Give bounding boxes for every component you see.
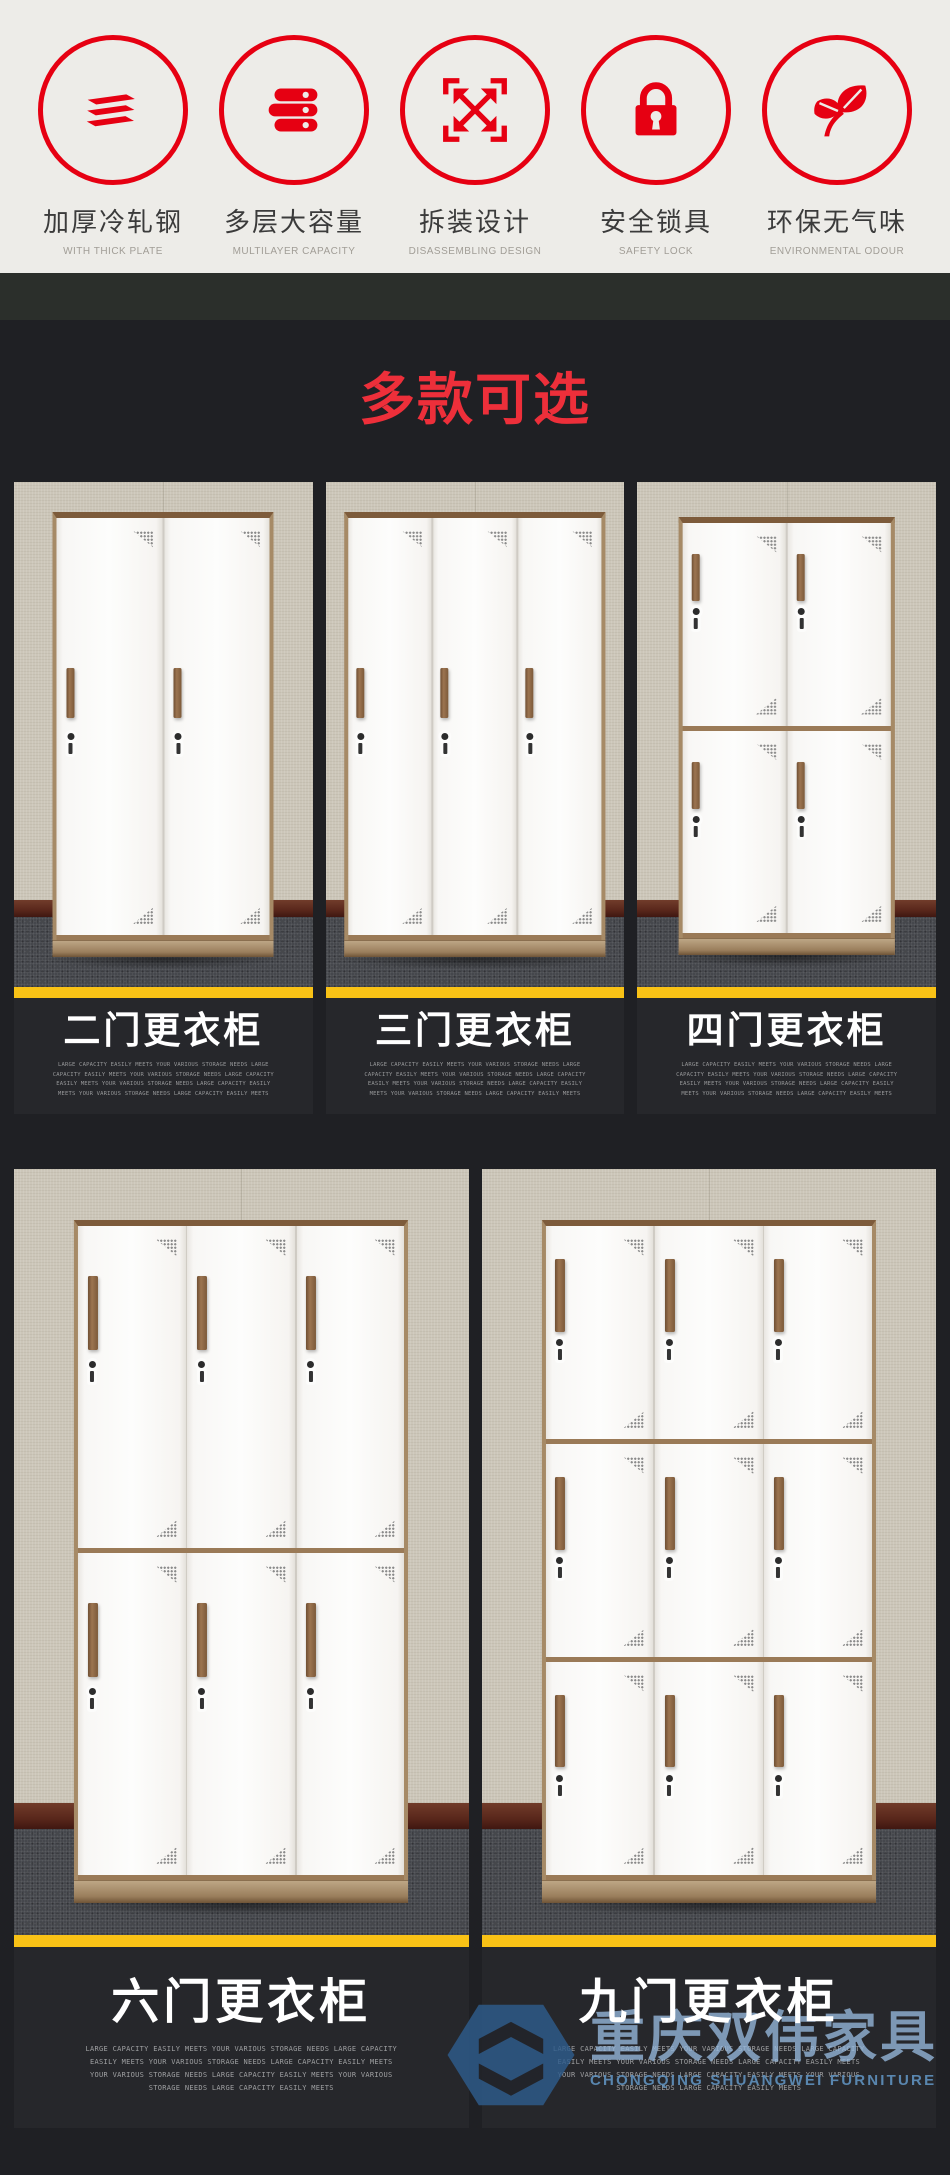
- door-handle: [774, 1259, 784, 1331]
- locker-door: [655, 1226, 763, 1439]
- vent-perforation-icon: [733, 1847, 754, 1864]
- vent-perforation-icon: [572, 531, 593, 548]
- vent-perforation-icon: [842, 1457, 863, 1474]
- door-handle: [441, 668, 449, 718]
- accent-stripe: [14, 987, 313, 998]
- product-label: 三门更衣柜LARGE CAPACITY EASILY MEETS YOUR VA…: [326, 998, 625, 1114]
- feature-label: 加厚冷轧钢: [43, 202, 183, 239]
- keyhole-icon: [775, 1339, 782, 1346]
- vent-perforation-icon: [133, 531, 154, 548]
- feature-item: 拆装设计DISASSEMBLING DESIGN: [390, 0, 560, 257]
- locker-door: [655, 1444, 763, 1657]
- key-icon: [200, 1371, 204, 1382]
- locker-door: [787, 731, 891, 934]
- door-handle: [665, 1695, 675, 1767]
- feature-label: 拆装设计: [419, 202, 531, 239]
- locker-door: [348, 518, 431, 935]
- catalog-section: 多款可选 二门更衣柜LARGE CAPACITY EASILY MEETS YO…: [0, 368, 950, 2173]
- door-handle: [555, 1259, 565, 1331]
- locker-door-row: [682, 731, 891, 934]
- locker-door-row: [682, 523, 891, 726]
- keyhole-icon: [666, 1339, 673, 1346]
- locker-plinth: [678, 938, 895, 955]
- vent-perforation-icon: [156, 1847, 177, 1864]
- locker-door: [297, 1226, 405, 1548]
- vent-perforation-icon: [265, 1239, 286, 1256]
- vent-perforation-icon: [240, 531, 261, 548]
- vent-perforation-icon: [402, 907, 423, 924]
- door-lock: [354, 733, 367, 754]
- door-handle: [66, 668, 74, 718]
- vent-perforation-icon: [623, 1239, 644, 1256]
- locker-door: [655, 1662, 763, 1875]
- section-title: 多款可选: [0, 368, 950, 432]
- disassemble-icon: [436, 71, 514, 149]
- keyhole-icon: [527, 733, 534, 740]
- features-section: 加厚冷轧钢WITH THICK PLATE多层大容量MULTILAYER CAP…: [0, 0, 950, 273]
- vent-perforation-icon: [756, 536, 777, 553]
- vent-perforation-icon: [756, 744, 777, 761]
- door-handle: [88, 1276, 98, 1350]
- vent-perforation-icon: [861, 536, 882, 553]
- door-lock: [304, 1688, 317, 1709]
- vent-perforation-icon: [861, 698, 882, 715]
- door-handle: [197, 1603, 207, 1677]
- locker-door: [187, 1553, 295, 1875]
- door-lock: [663, 1557, 676, 1578]
- vent-perforation-icon: [374, 1847, 395, 1864]
- vent-perforation-icon: [156, 1566, 177, 1583]
- vent-perforation-icon: [861, 744, 882, 761]
- product-label: 九门更衣柜LARGE CAPACITY EASILY MEETS YOUR VA…: [482, 1947, 937, 2128]
- door-handle: [197, 1276, 207, 1350]
- keyhole-icon: [556, 1339, 563, 1346]
- locker: [344, 512, 605, 957]
- locker-door: [682, 731, 786, 934]
- product-description: LARGE CAPACITY EASILY MEETS YOUR VARIOUS…: [48, 1061, 278, 1100]
- keyhole-icon: [693, 608, 700, 615]
- door-lock: [439, 733, 452, 754]
- feature-circle: [400, 35, 550, 185]
- key-icon: [358, 743, 362, 754]
- door-lock: [86, 1688, 99, 1709]
- door-lock: [304, 1361, 317, 1382]
- locker-door: [433, 518, 516, 935]
- lock-icon: [617, 71, 695, 149]
- product-photo: [326, 482, 625, 987]
- locker-plinth: [542, 1880, 876, 1903]
- feature-sublabel: ENVIRONMENTAL ODOUR: [770, 246, 905, 257]
- door-handle: [306, 1276, 316, 1350]
- key-icon: [776, 1567, 780, 1578]
- product-label: 六门更衣柜LARGE CAPACITY EASILY MEETS YOUR VA…: [14, 1947, 469, 2128]
- product-card: 二门更衣柜LARGE CAPACITY EASILY MEETS YOUR VA…: [14, 482, 313, 1114]
- vent-perforation-icon: [756, 698, 777, 715]
- feature-sublabel: WITH THICK PLATE: [63, 246, 163, 257]
- product-card: 六门更衣柜LARGE CAPACITY EASILY MEETS YOUR VA…: [14, 1169, 469, 2128]
- product-label: 二门更衣柜LARGE CAPACITY EASILY MEETS YOUR VA…: [14, 998, 313, 1114]
- product-card: 三门更衣柜LARGE CAPACITY EASILY MEETS YOUR VA…: [326, 482, 625, 1114]
- locker-door: [187, 1226, 295, 1548]
- accent-stripe: [326, 987, 625, 998]
- locker-door-row: [78, 1226, 404, 1548]
- locker-door: [764, 1444, 872, 1657]
- key-icon: [667, 1785, 671, 1796]
- keyhole-icon: [775, 1775, 782, 1782]
- vent-perforation-icon: [623, 1629, 644, 1646]
- door-lock: [772, 1557, 785, 1578]
- accent-stripe: [14, 1935, 469, 1947]
- keyhole-icon: [198, 1688, 205, 1695]
- keyhole-icon: [775, 1557, 782, 1564]
- product-label: 四门更衣柜LARGE CAPACITY EASILY MEETS YOUR VA…: [637, 998, 936, 1114]
- locker-plinth: [53, 940, 274, 957]
- section-divider: [0, 273, 950, 320]
- product-name: 三门更衣柜: [326, 1011, 625, 1051]
- vent-perforation-icon: [733, 1239, 754, 1256]
- keyhole-icon: [89, 1688, 96, 1695]
- door-lock: [86, 1361, 99, 1382]
- door-lock: [553, 1775, 566, 1796]
- keyhole-icon: [357, 733, 364, 740]
- accent-stripe: [482, 1935, 937, 1947]
- door-handle: [555, 1477, 565, 1549]
- feature-sublabel: DISASSEMBLING DESIGN: [409, 246, 542, 257]
- vent-perforation-icon: [733, 1457, 754, 1474]
- door-handle: [555, 1695, 565, 1767]
- feature-item: 环保无气味ENVIRONMENTAL ODOUR: [752, 0, 922, 257]
- locker-plinth: [344, 940, 605, 957]
- product-description: LARGE CAPACITY EASILY MEETS YOUR VARIOUS…: [546, 2043, 871, 2095]
- feature-circle: [38, 35, 188, 185]
- door-handle: [692, 554, 700, 601]
- product-description: LARGE CAPACITY EASILY MEETS YOUR VARIOUS…: [360, 1061, 590, 1100]
- door-lock: [553, 1557, 566, 1578]
- door-handle: [356, 668, 364, 718]
- product-photo: [14, 482, 313, 987]
- door-lock: [172, 733, 185, 754]
- keyhole-icon: [666, 1775, 673, 1782]
- feature-sublabel: SAFETY LOCK: [619, 246, 693, 257]
- key-icon: [309, 1698, 313, 1709]
- locker-plinth: [74, 1880, 408, 1903]
- vent-perforation-icon: [623, 1411, 644, 1428]
- vent-perforation-icon: [733, 1675, 754, 1692]
- locker-door: [546, 1662, 654, 1875]
- locker-door: [518, 518, 601, 935]
- locker-door-row: [546, 1662, 872, 1875]
- key-icon: [694, 618, 698, 629]
- key-icon: [558, 1785, 562, 1796]
- vent-perforation-icon: [733, 1411, 754, 1428]
- locker-door-row: [546, 1444, 872, 1657]
- vent-perforation-icon: [756, 905, 777, 922]
- locker-door: [764, 1662, 872, 1875]
- vent-perforation-icon: [133, 907, 154, 924]
- door-handle: [306, 1603, 316, 1677]
- keyhole-icon: [89, 1361, 96, 1368]
- door-handle: [692, 762, 700, 809]
- door-lock: [195, 1361, 208, 1382]
- product-grid-row-1: 二门更衣柜LARGE CAPACITY EASILY MEETS YOUR VA…: [0, 482, 950, 1114]
- feature-label: 环保无气味: [767, 202, 907, 239]
- keyhole-icon: [666, 1557, 673, 1564]
- vent-perforation-icon: [842, 1629, 863, 1646]
- product-photo: [14, 1169, 469, 1935]
- vent-perforation-icon: [374, 1239, 395, 1256]
- door-lock: [195, 1688, 208, 1709]
- vent-perforation-icon: [842, 1411, 863, 1428]
- key-icon: [799, 618, 803, 629]
- keyhole-icon: [307, 1688, 314, 1695]
- locker-door: [164, 518, 270, 935]
- feature-label: 安全锁具: [600, 202, 712, 239]
- product-name: 四门更衣柜: [637, 1011, 936, 1051]
- vent-perforation-icon: [487, 531, 508, 548]
- key-icon: [799, 826, 803, 837]
- vent-perforation-icon: [623, 1675, 644, 1692]
- vent-perforation-icon: [156, 1520, 177, 1537]
- vent-perforation-icon: [402, 531, 423, 548]
- keyhole-icon: [798, 608, 805, 615]
- door-lock: [690, 816, 703, 837]
- door-handle: [797, 554, 805, 601]
- keyhole-icon: [556, 1557, 563, 1564]
- door-handle: [174, 668, 182, 718]
- door-handle: [797, 762, 805, 809]
- feature-item: 加厚冷轧钢WITH THICK PLATE: [28, 0, 198, 257]
- vent-perforation-icon: [156, 1239, 177, 1256]
- key-icon: [776, 1785, 780, 1796]
- vent-perforation-icon: [265, 1847, 286, 1864]
- vent-perforation-icon: [265, 1566, 286, 1583]
- vent-perforation-icon: [861, 905, 882, 922]
- door-lock: [64, 733, 77, 754]
- keyhole-icon: [442, 733, 449, 740]
- drawers-icon: [255, 71, 333, 149]
- feature-circle: [762, 35, 912, 185]
- key-icon: [309, 1371, 313, 1382]
- door-lock: [553, 1339, 566, 1360]
- product-grid-row-2: 六门更衣柜LARGE CAPACITY EASILY MEETS YOUR VA…: [0, 1169, 950, 2128]
- door-lock: [772, 1775, 785, 1796]
- door-handle: [665, 1477, 675, 1549]
- product-description: LARGE CAPACITY EASILY MEETS YOUR VARIOUS…: [79, 2043, 404, 2095]
- door-lock: [663, 1775, 676, 1796]
- door-handle: [774, 1477, 784, 1549]
- locker: [74, 1220, 408, 1903]
- leaf-icon: [798, 71, 876, 149]
- key-icon: [558, 1567, 562, 1578]
- vent-perforation-icon: [733, 1629, 754, 1646]
- key-icon: [90, 1698, 94, 1709]
- key-icon: [69, 743, 73, 754]
- locker-door: [787, 523, 891, 726]
- door-handle: [526, 668, 534, 718]
- locker-door: [57, 518, 163, 935]
- locker-door: [78, 1553, 186, 1875]
- feature-item: 多层大容量MULTILAYER CAPACITY: [209, 0, 379, 257]
- vent-perforation-icon: [374, 1566, 395, 1583]
- feature-item: 安全锁具SAFETY LOCK: [571, 0, 741, 257]
- key-icon: [667, 1349, 671, 1360]
- locker-door: [546, 1226, 654, 1439]
- keyhole-icon: [693, 816, 700, 823]
- door-lock: [524, 733, 537, 754]
- door-lock: [795, 608, 808, 629]
- vent-perforation-icon: [842, 1847, 863, 1864]
- vent-perforation-icon: [572, 907, 593, 924]
- keyhole-icon: [175, 733, 182, 740]
- key-icon: [667, 1567, 671, 1578]
- vent-perforation-icon: [842, 1675, 863, 1692]
- locker-door: [78, 1226, 186, 1548]
- key-icon: [776, 1349, 780, 1360]
- product-card: 四门更衣柜LARGE CAPACITY EASILY MEETS YOUR VA…: [637, 482, 936, 1114]
- vent-perforation-icon: [623, 1457, 644, 1474]
- vent-perforation-icon: [374, 1520, 395, 1537]
- product-photo: [482, 1169, 937, 1935]
- keyhole-icon: [307, 1361, 314, 1368]
- layers-icon: [74, 71, 152, 149]
- key-icon: [90, 1371, 94, 1382]
- keyhole-icon: [798, 816, 805, 823]
- key-icon: [558, 1349, 562, 1360]
- key-icon: [176, 743, 180, 754]
- feature-label: 多层大容量: [224, 202, 364, 239]
- product-name: 二门更衣柜: [14, 1011, 313, 1051]
- locker-door-row: [57, 518, 270, 935]
- vent-perforation-icon: [265, 1520, 286, 1537]
- vent-perforation-icon: [487, 907, 508, 924]
- door-handle: [665, 1259, 675, 1331]
- product-name: 九门更衣柜: [482, 1977, 937, 2029]
- product-card: 九门更衣柜LARGE CAPACITY EASILY MEETS YOUR VA…: [482, 1169, 937, 2128]
- locker: [678, 517, 895, 955]
- key-icon: [443, 743, 447, 754]
- keyhole-icon: [67, 733, 74, 740]
- door-handle: [774, 1695, 784, 1767]
- door-lock: [663, 1339, 676, 1360]
- product-detail-page: 加厚冷轧钢WITH THICK PLATE多层大容量MULTILAYER CAP…: [0, 0, 950, 2175]
- locker-door-row: [546, 1226, 872, 1439]
- locker-door-row: [78, 1553, 404, 1875]
- key-icon: [200, 1698, 204, 1709]
- product-description: LARGE CAPACITY EASILY MEETS YOUR VARIOUS…: [672, 1061, 902, 1100]
- key-icon: [694, 826, 698, 837]
- feature-sublabel: MULTILAYER CAPACITY: [233, 246, 356, 257]
- vent-perforation-icon: [842, 1239, 863, 1256]
- vent-perforation-icon: [240, 907, 261, 924]
- key-icon: [528, 743, 532, 754]
- locker: [53, 512, 274, 957]
- locker-door: [682, 523, 786, 726]
- vent-perforation-icon: [623, 1847, 644, 1864]
- door-lock: [795, 816, 808, 837]
- accent-stripe: [637, 987, 936, 998]
- door-lock: [690, 608, 703, 629]
- door-handle: [88, 1603, 98, 1677]
- product-photo: [637, 482, 936, 987]
- locker: [542, 1220, 876, 1903]
- product-name: 六门更衣柜: [14, 1977, 469, 2029]
- feature-circle: [581, 35, 731, 185]
- feature-circle: [219, 35, 369, 185]
- locker-door: [764, 1226, 872, 1439]
- locker-door: [297, 1553, 405, 1875]
- locker-door: [546, 1444, 654, 1657]
- locker-door-row: [348, 518, 601, 935]
- door-lock: [772, 1339, 785, 1360]
- keyhole-icon: [556, 1775, 563, 1782]
- keyhole-icon: [198, 1361, 205, 1368]
